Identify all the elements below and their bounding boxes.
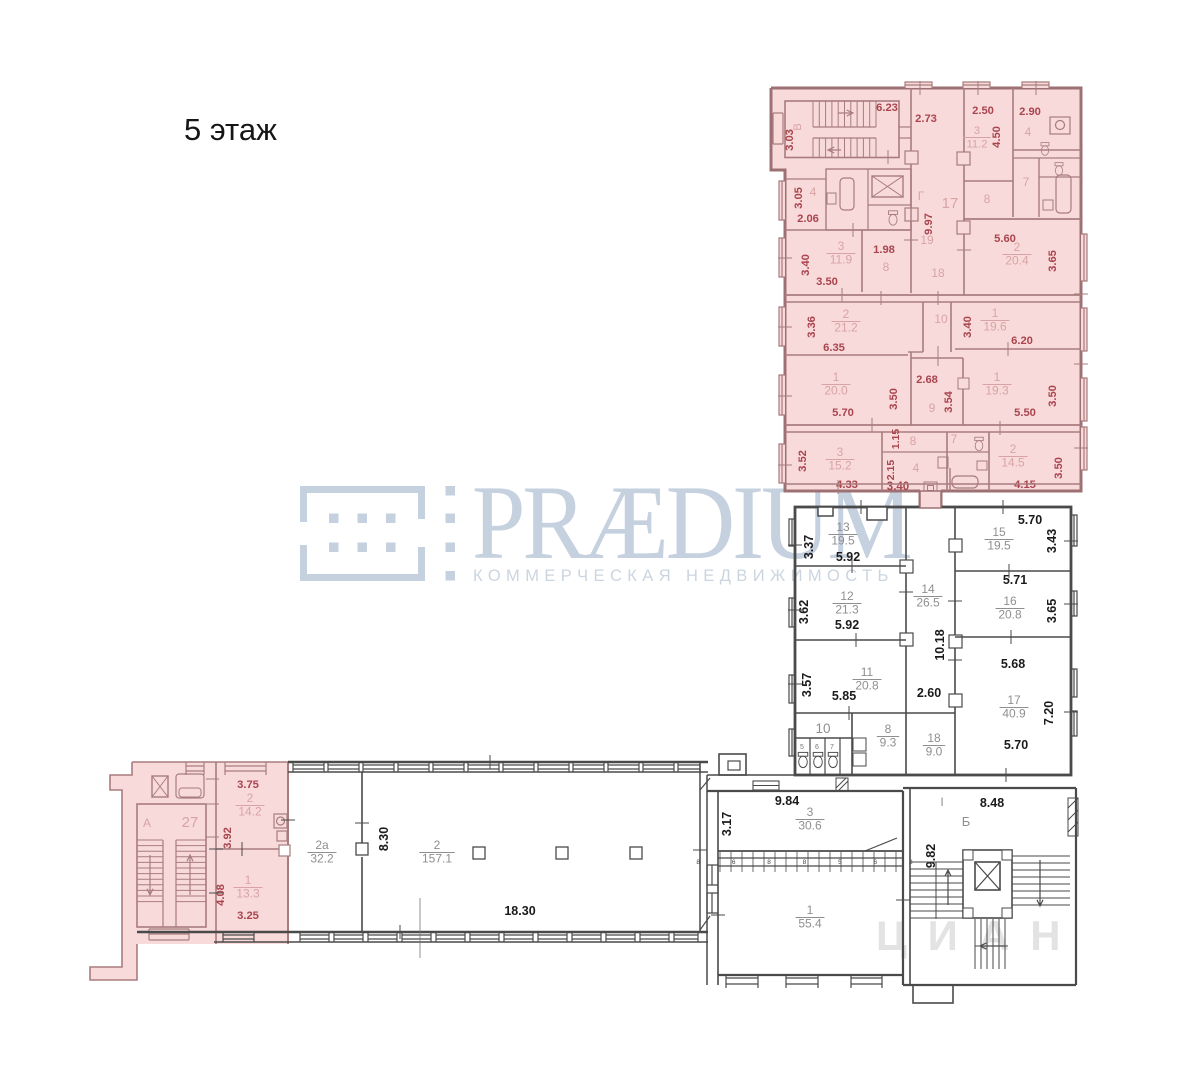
- svg-text:3.40: 3.40: [887, 481, 909, 493]
- svg-text:3.25: 3.25: [237, 910, 259, 922]
- svg-text:14: 14: [921, 582, 935, 596]
- svg-text:15.2: 15.2: [828, 459, 852, 473]
- svg-text:5.70: 5.70: [832, 407, 854, 419]
- svg-text:20.4: 20.4: [1005, 254, 1029, 268]
- svg-text:27: 27: [182, 814, 199, 831]
- svg-text:3.40: 3.40: [962, 316, 974, 338]
- svg-text:15: 15: [992, 525, 1006, 539]
- svg-text:14.5: 14.5: [1001, 456, 1025, 470]
- svg-text:КОММЕРЧЕСКАЯ НЕДВИЖИМОСТЬ: КОММЕРЧЕСКАЯ НЕДВИЖИМОСТЬ: [473, 567, 894, 585]
- svg-text:4: 4: [810, 185, 817, 199]
- svg-text:6.20: 6.20: [1011, 335, 1033, 347]
- svg-text:5.92: 5.92: [835, 618, 859, 632]
- svg-text:3.37: 3.37: [802, 535, 816, 559]
- svg-text:13.3: 13.3: [236, 887, 260, 901]
- svg-text:10: 10: [815, 721, 830, 736]
- svg-text:20.8: 20.8: [855, 679, 879, 693]
- svg-text:6.35: 6.35: [823, 342, 845, 354]
- svg-text:2.73: 2.73: [915, 113, 937, 125]
- svg-text:5.71: 5.71: [1003, 573, 1027, 587]
- svg-text:2: 2: [843, 307, 850, 321]
- svg-text:1: 1: [994, 370, 1001, 384]
- svg-text:2.60: 2.60: [917, 686, 941, 700]
- svg-text:19.5: 19.5: [831, 534, 855, 548]
- svg-text:8: 8: [984, 192, 991, 206]
- svg-text:4: 4: [1025, 125, 1032, 139]
- svg-text:4.08: 4.08: [215, 884, 227, 906]
- svg-text:2.50: 2.50: [972, 105, 994, 117]
- svg-text:2: 2: [1010, 442, 1017, 456]
- svg-text:1: 1: [807, 903, 814, 917]
- svg-text:7: 7: [1023, 175, 1030, 189]
- svg-text:1: 1: [833, 370, 840, 384]
- svg-text:ЦИАН: ЦИАН: [876, 912, 1082, 959]
- svg-text:3.54: 3.54: [943, 390, 955, 413]
- svg-text:17: 17: [1007, 693, 1021, 707]
- svg-text:4.50: 4.50: [991, 126, 1003, 148]
- svg-text:2: 2: [434, 838, 441, 852]
- svg-text:3.40: 3.40: [800, 254, 812, 276]
- svg-text:9.84: 9.84: [775, 794, 799, 808]
- svg-text:3.92: 3.92: [222, 827, 234, 849]
- svg-text:32.2: 32.2: [310, 852, 334, 866]
- svg-text:7.20: 7.20: [1042, 701, 1056, 725]
- svg-text:2: 2: [247, 791, 254, 805]
- svg-text:3.50: 3.50: [1047, 385, 1059, 407]
- svg-text:11.2: 11.2: [967, 139, 988, 151]
- svg-text:Г: Г: [918, 189, 925, 203]
- svg-text:2.68: 2.68: [916, 374, 938, 386]
- svg-text:17: 17: [942, 195, 959, 212]
- svg-text:3.50: 3.50: [888, 388, 900, 410]
- svg-text:3: 3: [807, 805, 814, 819]
- svg-text:18.30: 18.30: [504, 904, 535, 918]
- svg-text:5.60: 5.60: [994, 233, 1016, 245]
- svg-text:5.85: 5.85: [832, 689, 856, 703]
- svg-text:19.3: 19.3: [985, 384, 1009, 398]
- svg-text:6.23: 6.23: [876, 102, 898, 114]
- svg-text:9.0: 9.0: [926, 745, 943, 759]
- svg-text:3.43: 3.43: [1045, 529, 1059, 553]
- svg-text:9: 9: [929, 401, 936, 415]
- svg-text:8: 8: [910, 434, 917, 448]
- svg-text:26.5: 26.5: [916, 596, 940, 610]
- svg-text:2.15: 2.15: [885, 460, 897, 481]
- svg-text:12: 12: [840, 589, 854, 603]
- svg-text:9.97: 9.97: [923, 213, 935, 235]
- svg-text:8 6 8 8 5 6 3: 8 6 8 8 5 6 3: [696, 859, 927, 866]
- svg-text:11.9: 11.9: [830, 253, 853, 267]
- svg-text:13: 13: [836, 520, 850, 534]
- svg-text:5.68: 5.68: [1001, 657, 1025, 671]
- svg-text:3.50: 3.50: [1053, 457, 1065, 479]
- svg-text:1: 1: [992, 306, 999, 320]
- svg-text:19.5: 19.5: [987, 539, 1011, 553]
- svg-text:3: 3: [837, 445, 844, 459]
- svg-text:18: 18: [931, 266, 945, 280]
- svg-text:3.62: 3.62: [797, 600, 811, 624]
- svg-text:1.15: 1.15: [890, 429, 902, 450]
- svg-text:4.33: 4.33: [836, 479, 858, 491]
- svg-text:14.2: 14.2: [238, 805, 262, 819]
- svg-text:18: 18: [927, 731, 941, 745]
- svg-text:5.92: 5.92: [836, 550, 860, 564]
- svg-text:55.4: 55.4: [798, 917, 822, 931]
- svg-text:1: 1: [245, 873, 252, 887]
- svg-text:10: 10: [934, 312, 948, 326]
- svg-text:3.57: 3.57: [800, 673, 814, 697]
- svg-text:9.3: 9.3: [880, 736, 897, 750]
- svg-text:21.3: 21.3: [835, 603, 859, 617]
- svg-text:21.2: 21.2: [834, 321, 858, 335]
- svg-text:8: 8: [885, 722, 892, 736]
- svg-text:3.65: 3.65: [1047, 250, 1059, 272]
- svg-text:8.48: 8.48: [980, 796, 1004, 810]
- svg-text:3: 3: [838, 239, 845, 253]
- svg-text:19: 19: [920, 233, 934, 247]
- svg-text:I: I: [940, 795, 943, 809]
- svg-text:3.75: 3.75: [237, 779, 259, 791]
- svg-text:157.1: 157.1: [422, 852, 452, 866]
- svg-text:5: 5: [800, 744, 804, 751]
- svg-text:19.6: 19.6: [983, 320, 1007, 334]
- svg-text:А: А: [143, 816, 151, 830]
- svg-text:4.15: 4.15: [1014, 479, 1036, 491]
- svg-text:2.06: 2.06: [797, 213, 819, 225]
- svg-text:3.52: 3.52: [797, 450, 809, 472]
- svg-text:30.6: 30.6: [798, 819, 822, 833]
- svg-text:5.50: 5.50: [1014, 407, 1036, 419]
- svg-text:2: 2: [1014, 240, 1021, 254]
- svg-text:8.30: 8.30: [377, 827, 391, 851]
- svg-text:40.9: 40.9: [1002, 707, 1026, 721]
- svg-text:3.17: 3.17: [720, 812, 734, 836]
- svg-text:7: 7: [830, 744, 834, 751]
- svg-text:1.98: 1.98: [873, 244, 895, 256]
- svg-text:6: 6: [815, 744, 819, 751]
- svg-text:20.0: 20.0: [824, 384, 848, 398]
- svg-text:10.18: 10.18: [933, 629, 947, 660]
- svg-text:3.03: 3.03: [784, 129, 796, 151]
- svg-text:20.8: 20.8: [998, 608, 1022, 622]
- svg-text:2.90: 2.90: [1019, 106, 1041, 118]
- svg-text:3.65: 3.65: [1045, 599, 1059, 623]
- svg-text:3.50: 3.50: [816, 276, 838, 288]
- svg-text:2а: 2а: [315, 838, 329, 852]
- svg-text:7: 7: [951, 432, 958, 446]
- svg-text:16: 16: [1003, 594, 1017, 608]
- svg-text:3: 3: [974, 125, 980, 137]
- svg-text:5.70: 5.70: [1004, 738, 1028, 752]
- svg-text:4: 4: [913, 461, 920, 475]
- svg-text:3.05: 3.05: [793, 187, 805, 209]
- svg-text:5 этаж: 5 этаж: [184, 112, 277, 147]
- svg-text:8: 8: [883, 260, 890, 274]
- svg-text:3.36: 3.36: [806, 316, 818, 338]
- svg-text:Б: Б: [962, 814, 971, 829]
- svg-text:5.70: 5.70: [1018, 513, 1042, 527]
- svg-text:11: 11: [861, 665, 874, 679]
